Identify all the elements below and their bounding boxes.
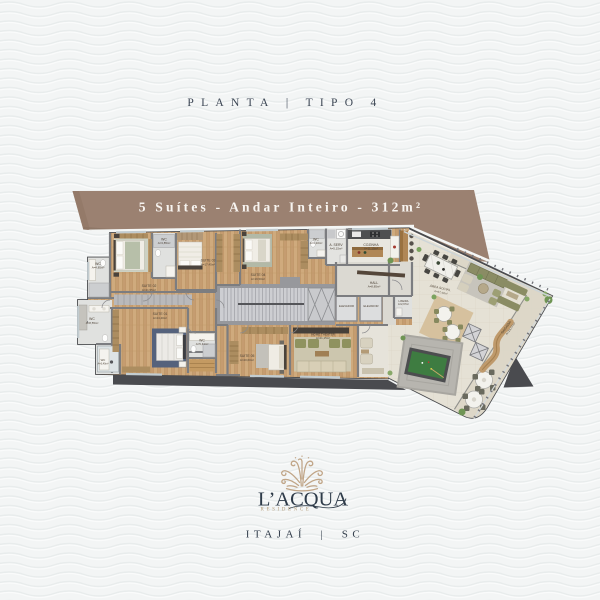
svg-text:A=17,45m²: A=17,45m²	[201, 263, 215, 267]
svg-text:A=3,10m²: A=3,10m²	[310, 241, 323, 245]
svg-text:A=5,41m²: A=5,41m²	[196, 342, 209, 346]
svg-text:A=3,85m²: A=3,85m²	[158, 241, 171, 245]
svg-text:A=8,55m²: A=8,55m²	[86, 321, 99, 325]
svg-text:A=8,85m²: A=8,85m²	[368, 285, 381, 289]
svg-text:A=4,85m²: A=4,85m²	[92, 266, 105, 270]
svg-text:WC: WC	[101, 358, 106, 362]
svg-text:A=21,15m²: A=21,15m²	[316, 336, 330, 340]
svg-text:ELEVADOR: ELEVADOR	[339, 304, 354, 308]
svg-text:A=19,50m²: A=19,50m²	[251, 277, 265, 281]
svg-text:RESIDENCE: RESIDENCE	[261, 508, 312, 513]
svg-text:A=24,40m²: A=24,40m²	[153, 316, 167, 320]
svg-text:5 Suítes - Andar Inteiro - 312: 5 Suítes - Andar Inteiro - 312m²	[139, 200, 423, 215]
svg-text:A=11,15m²: A=11,15m²	[364, 247, 378, 251]
svg-text:A=20,60m²: A=20,60m²	[240, 358, 254, 362]
svg-text:ITAJAÍ | SC: ITAJAÍ | SC	[246, 529, 365, 541]
svg-text:A=5,15m²: A=5,15m²	[330, 247, 343, 251]
svg-text:PLANTA | TIPO 4: PLANTA | TIPO 4	[187, 97, 383, 109]
svg-text:A=3,40m²: A=3,40m²	[98, 363, 109, 366]
svg-text:A=21,55m²: A=21,55m²	[142, 288, 156, 292]
svg-text:A=2,97m²: A=2,97m²	[398, 303, 409, 306]
svg-text:ELEVADOR: ELEVADOR	[363, 304, 378, 308]
